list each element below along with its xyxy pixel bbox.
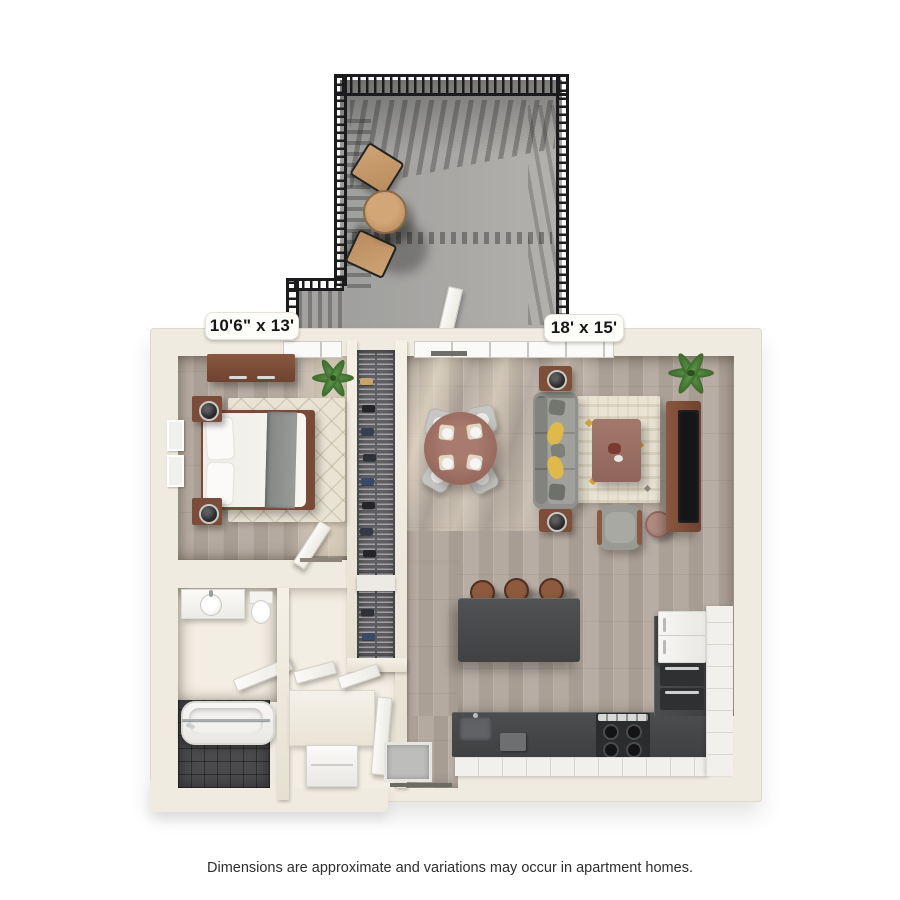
hanging-clothes [361,478,374,485]
patio-table [363,190,407,234]
balcony-railing-top [334,74,568,96]
coffee-table [592,419,641,482]
bathtub [181,701,275,745]
wall-oven-handle [665,691,699,694]
stove-control-panel [598,714,648,721]
hanging-clothes [361,428,374,435]
railing-shadow-right [528,105,560,325]
sofa-pillow [548,399,566,416]
railing-shadow-diagonal [350,100,555,188]
balcony-door-threshold [431,351,467,356]
place-setting [438,424,454,440]
rug-accent [644,485,651,492]
stove-burner [603,724,619,740]
patio-chair-top [349,142,405,196]
kitchen-sink [459,716,492,741]
dresser-handle [257,376,275,379]
hanging-clothes [363,454,376,461]
sink-faucet [473,713,478,718]
vanity-faucet [209,590,213,597]
wall-oven [660,664,704,686]
floor-plan: 10'6" x 13' 18' x 15' Dimensions are app… [0,0,900,900]
dresser-handle [229,376,247,379]
railing-shadow-notch [298,290,342,328]
railing-shadow-left [347,118,371,288]
hanging-clothes [363,550,376,557]
hanging-clothes [362,502,375,509]
place-setting [438,454,454,470]
closet-wall-right [395,340,407,788]
patio-set-shadow [372,222,428,274]
disclaimer-caption: Dimensions are approximate and variation… [0,860,900,876]
stove-burner [603,742,619,758]
closet-wire-shelf [377,591,393,658]
bedroom-dimensions-text: 10'6" x 13' [210,316,295,336]
bed-throw-blanket [265,412,298,509]
hanging-clothes [361,609,374,616]
closet-interior-upper [357,350,395,575]
end-table [539,509,572,532]
kitchen-cabinets-right [706,606,733,776]
hanging-clothes [360,378,373,385]
wall-oven-handle [665,667,699,670]
balcony-floor [340,80,562,330]
refrigerator-handle [663,618,666,632]
table-lamp [547,512,567,532]
washer-door-seam [311,764,353,766]
bed-pillow [205,416,235,460]
patio-chair-bottom [344,229,397,279]
sofa-pillow [548,483,565,500]
kitchen-cabinets-bottom [455,757,708,776]
balcony-notch-floor [296,288,344,330]
table-decor-flowers [608,443,621,454]
wall-art-frame [167,455,184,487]
balcony-railing-notch-top [286,278,344,291]
armchair-wood-arm [637,510,642,545]
living-room-plant [668,352,714,394]
armchair [597,505,642,550]
bedroom-door-threshold [300,558,342,562]
shower-curtain-rod [182,719,270,721]
laundry-counter [289,690,375,746]
railing-shadow-row [352,232,552,244]
toilet-bowl [251,600,271,624]
wall-art-frame [167,420,184,451]
stove-burner [626,742,642,758]
table-decor-dish [614,455,623,462]
hanging-clothes [362,405,375,412]
armchair-wood-arm [597,510,602,545]
closet-wire-shelf [377,350,393,575]
bed-headboard [183,412,203,508]
countertop-appliance [500,733,526,751]
entry-threshold [390,783,452,787]
table-lamp [199,401,219,421]
bathroom-vanity [181,589,245,619]
refrigerator-door-seam [659,635,705,636]
refrigerator-handle [663,640,666,654]
balcony-top-shadow [340,80,562,155]
place-setting [466,454,483,471]
closet-wire-shelf [359,591,375,658]
nightstand [192,396,222,422]
sofa-back [535,396,547,504]
table-clock [547,370,567,390]
closet-shelf-divider [357,575,395,591]
bathtub-basin [189,708,263,734]
entry-doormat [384,742,432,782]
stove-burner [626,724,642,740]
refrigerator [658,611,706,663]
kitchen-island [458,598,580,662]
dining-table [424,412,497,485]
nightstand [192,498,222,525]
balcony-railing-right [556,74,569,332]
end-table [539,366,572,391]
vanity-sink [200,594,222,616]
bathroom-laundry-wall [277,588,289,800]
living-room-dimensions-label: 18' x 15' [544,314,624,342]
armchair-cushion [605,512,635,543]
bedroom-dimensions-label: 10'6" x 13' [205,312,299,340]
hanging-clothes [360,528,373,535]
stove-cooktop [596,713,650,760]
table-lamp [199,504,219,524]
hanging-clothes [362,633,375,640]
washer-dryer [306,745,358,787]
closet-interior-lower [357,591,395,658]
wall-oven [660,688,704,710]
living-room-dimensions-text: 18' x 15' [551,318,618,338]
place-setting [466,423,483,440]
bedroom-plant [312,358,354,398]
dresser [207,354,295,382]
sofa [533,392,578,509]
television [678,410,699,523]
balcony-railing-left [334,74,347,286]
